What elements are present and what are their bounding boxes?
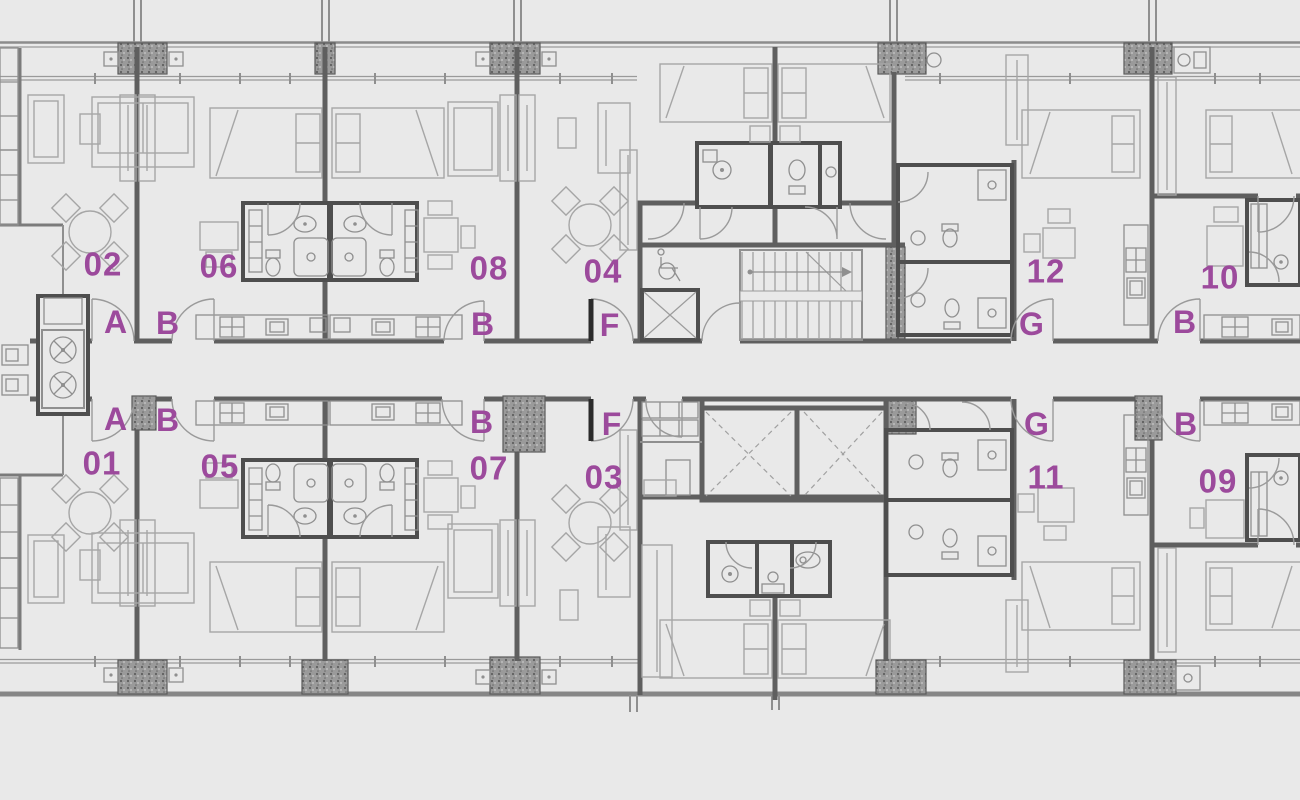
table-08 [424,201,475,269]
unit-label-06: 06 [200,250,239,283]
wardrobes [620,55,1176,677]
bathroom-pod-05-07 [243,460,418,537]
sofa-02 [92,97,194,167]
bathroom-pod-10 [1247,200,1300,285]
bathroom-pod-06-08 [243,203,418,280]
door-label-f-bot: F [602,408,623,440]
elevator-shafts [702,408,886,500]
facade-pier-blocks [118,43,1176,694]
door-label-b3-bot: B [1174,408,1198,440]
unit-label-04: 04 [584,255,623,288]
table-10 [1207,207,1243,266]
corridor-end-fixtures [2,345,28,395]
unit-label-05: 05 [201,450,240,483]
unit-label-11: 11 [1028,461,1065,494]
unit-label-01: 01 [83,447,122,480]
unit-label-12: 12 [1027,255,1066,288]
sofa-01 [92,533,194,603]
door-label-b2-bot: B [470,406,494,438]
door-label-b2-top: B [471,308,495,340]
unit-label-09: 09 [1199,465,1238,498]
sofas-and-media [80,95,630,620]
door-label-f-top: F [600,309,621,341]
sofa-07 [448,524,498,598]
unit-label-07: 07 [470,452,509,485]
accessibility-symbol [658,249,680,281]
door-label-b3-top: B [1173,306,1197,338]
floor-plan-page: 02 06 08 04 12 10 01 05 07 03 11 09 A B … [0,0,1300,800]
service-chute [38,296,88,414]
elevator-upper [642,290,698,340]
left-edge-rooms [0,48,64,648]
door-label-g-bot: G [1024,408,1050,440]
building-shell [0,0,1300,712]
unit-label-10: 10 [1201,261,1240,294]
unit-label-03: 03 [585,461,624,494]
door-label-a-top: A [104,306,128,338]
sofa-04 [598,103,630,173]
window-ticks [95,73,1260,667]
stairwell [740,250,862,340]
door-label-b1-bot: B [156,404,180,436]
bathroom-pod-12 [898,165,1012,335]
door-label-b1-top: B [156,307,180,339]
bathroom-pod-center-top [697,143,840,239]
table-11 [1018,488,1074,540]
unit-label-08: 08 [470,252,509,285]
sofa-08 [448,102,498,176]
doors [92,196,1294,545]
floor-plan-drawing [0,0,1300,800]
table-07 [424,461,475,529]
unit-label-02: 02 [84,248,123,281]
round-table-03 [552,485,628,561]
door-label-a-bot: A [104,403,128,435]
party-walls [0,47,1300,700]
door-label-g-top: G [1019,308,1045,340]
table-09 [1190,500,1244,538]
bathroom-pod-09 [1247,455,1300,540]
table-12 [1024,209,1075,258]
kitchen-counters [196,225,1300,515]
bathroom-pod-center-bottom [708,542,830,596]
